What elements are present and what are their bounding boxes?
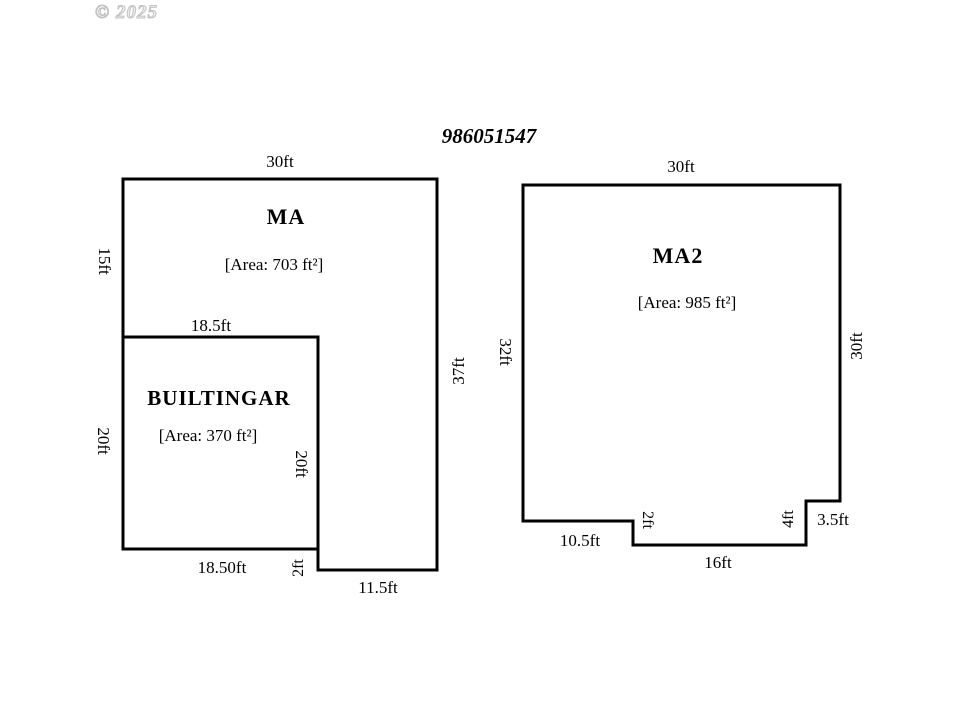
ma2-dim-notch: 3.5ft [817,510,849,529]
builtingar-dim-top: 18.5ft [191,316,231,335]
ma-building-outline [123,179,437,570]
builtingar-dim-right: 20ft [292,450,311,478]
ma2-dim-top: 30ft [667,157,695,176]
ma-dim-bottom-right: 11.5ft [358,578,398,597]
ma-room-name: MA [267,204,306,229]
ma2-building-outline [523,185,840,545]
ma2-dim-step-right: 4ft [780,510,797,528]
builtingar-dim-bottom: 18.50ft [198,558,247,577]
ma-dim-step: 2ft [290,559,307,577]
floor-plan-page: © 2025 986051547 MA [Area: 703 ft²] BUIL… [0,0,964,723]
ma-dim-left-upper: 15ft [95,247,114,275]
copyright-watermark: © 2025 [95,2,158,24]
ma2-dim-bottom-mid: 16ft [704,553,732,572]
ma2-room-name: MA2 [653,243,704,268]
ma2-dim-right: 30ft [847,332,866,360]
builtingar-room-name: BUILTINGAR [147,386,290,410]
ma2-dim-left: 32ft [496,338,515,366]
floor-plan-canvas: 986051547 MA [Area: 703 ft²] BUILTINGAR … [0,0,964,723]
ma2-dim-bottom-left: 10.5ft [560,531,600,550]
ma-dim-left-lower: 20ft [94,427,113,455]
ma-dim-right: 37ft [449,357,468,385]
plan-title: 986051547 [442,124,538,148]
ma-area-label: [Area: 703 ft²] [225,255,324,274]
ma2-area-label: [Area: 985 ft²] [638,293,737,312]
ma2-dim-step-left: 2ft [639,511,656,529]
ma-dim-top: 30ft [266,152,294,171]
builtingar-area-label: [Area: 370 ft²] [159,426,258,445]
